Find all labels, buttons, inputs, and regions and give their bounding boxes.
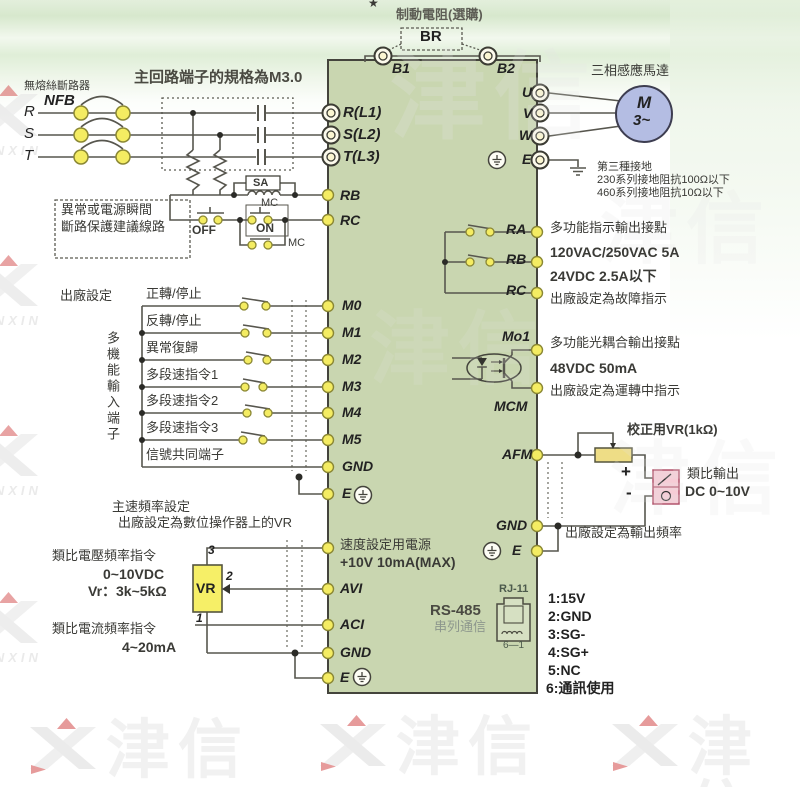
terminal-e-out-label: E [522, 151, 531, 167]
terminal-mo1-label: Mo1 [502, 328, 530, 344]
analog-current-range: 4~20mA [122, 639, 176, 655]
motor-phase-label: 3~ [633, 112, 650, 129]
terminal-m0-label: M0 [342, 297, 361, 313]
on-button-label[interactable]: ON [256, 222, 274, 236]
rj11-pin-range: 6—1 [503, 640, 524, 652]
terminal-aci-label: ACI [340, 616, 364, 632]
vr-pin1-label: 1 [196, 612, 203, 626]
terminal-ra-label: RA [506, 221, 526, 237]
terminal-b1 [375, 48, 392, 65]
terminal-rb2-label: RB [506, 251, 526, 267]
earth-icon [484, 543, 501, 560]
vr-spec: Vr：3k~5kΩ [88, 583, 167, 599]
input-row-desc: 正轉/停止 [146, 287, 202, 302]
vr-pin3-label: 3 [208, 544, 215, 558]
photo-note3: 出廠設定為運轉中指示 [550, 384, 680, 399]
terminal-avi-label: AVI [340, 580, 362, 596]
wiring-diagram-page: JINXIN JINXIN JINXIN JINXIN 津信 津信 津信 津信 … [0, 0, 800, 787]
terminal-rb [323, 190, 334, 201]
sa-label: SA [253, 177, 268, 190]
breaker-caption: 無熔絲斷路器 [24, 80, 90, 93]
terminal-e-out [532, 546, 543, 557]
analog-current-caption: 類比電流頻率指令 [52, 622, 156, 637]
terminal-mo1 [532, 345, 543, 356]
terminal-m2-label: M2 [342, 351, 361, 367]
terminal-u-label: U [522, 84, 532, 100]
terminal-rc-label: RC [340, 212, 360, 228]
terminal-w [532, 128, 549, 145]
photo-note2: 48VDC 50mA [550, 360, 637, 376]
terminal-e2-label: E [340, 669, 349, 685]
output-freq-note: 出廠設定為輸出頻率 [565, 526, 682, 541]
terminal-m4-label: M4 [342, 404, 361, 420]
pin-label: 3:SG- [548, 626, 585, 642]
terminal-b2 [480, 48, 497, 65]
analog-voltage-range: 0~10VDC [103, 566, 164, 582]
brake-resistor-label: 制動電阻(選購) [396, 8, 483, 23]
relay-note4: 出廠設定為故障指示 [550, 292, 667, 307]
pin-label: 5:NC [548, 662, 581, 678]
phase-t-label: T [24, 147, 33, 164]
pin-label: 2:GND [548, 608, 592, 624]
input-row-desc: 反轉/停止 [146, 314, 202, 329]
terminal-v-label: V [523, 105, 532, 121]
motor-m-label: M [637, 93, 651, 113]
terminal-rc-relay [532, 288, 543, 299]
terminal-b2-label: B2 [497, 60, 515, 76]
terminal-aci [323, 620, 334, 631]
input-row-desc: 多段速指令3 [146, 421, 218, 436]
photo-note1: 多功能光耦合輸出接點 [550, 336, 680, 351]
analog-voltage-caption: 類比電壓頻率指令 [52, 549, 156, 564]
grounding-line1: 第三種接地 [597, 161, 652, 174]
off-button-label[interactable]: OFF [192, 224, 216, 238]
input-group-label: 多機能輸入端子 [104, 331, 119, 443]
terminal-afm [532, 450, 543, 461]
terminal-b1-label: B1 [392, 60, 410, 76]
mc-contact-label: MC [288, 237, 305, 250]
analog-output-label2: DC 0~10V [685, 483, 750, 499]
phase-s-label: S [24, 125, 34, 142]
earth-icon [355, 487, 372, 504]
terminal-gnd-digital [323, 462, 334, 473]
surge-note-line1: 異常或電源瞬間 [61, 203, 152, 218]
terminal-w-label: W [519, 127, 532, 143]
input-row-desc: 異常復歸 [146, 341, 198, 356]
terminal-s-l2-label: S(L2) [343, 126, 381, 143]
serial-comm-label: 串列通信 [434, 620, 486, 635]
terminal-e-label: E [342, 485, 351, 501]
terminal-r-l1 [323, 105, 340, 122]
terminal-gnd-analog [323, 648, 334, 659]
rj11-jack[interactable] [497, 598, 530, 641]
pin-label: 4:SG+ [548, 644, 589, 660]
vr-pin2-label: 2 [226, 570, 233, 584]
terminal-afm-label: AFM [502, 446, 532, 462]
br-label: BR [420, 28, 442, 45]
analog-output-label1: 類比輸出 [687, 467, 739, 482]
star-marker: ★ [368, 0, 379, 11]
rs485-label: RS-485 [430, 602, 481, 619]
calibration-vr-label: 校正用VR(1kΩ) [627, 423, 718, 438]
terminal-e-output [532, 152, 549, 169]
terminal-rc2-label: RC [506, 282, 526, 298]
motor-caption: 三相感應馬達 [591, 64, 669, 79]
vr-label: VR [196, 580, 215, 596]
terminal-t-l3 [323, 149, 340, 166]
relay-note2: 120VAC/250VAC 5A [550, 244, 679, 260]
terminal-m1-label: M1 [342, 324, 361, 340]
terminal-m5 [323, 435, 334, 446]
terminal-gnd-label: GND [342, 458, 373, 474]
surge-note-line2: 斷路保護建議線路 [61, 220, 165, 235]
main-circuit-title: 主回路端子的規格為M3.0 [134, 69, 302, 86]
minus-sign: - [626, 483, 632, 503]
nfb-label: NFB [44, 92, 75, 109]
factory-setting-label: 出廠設定 [60, 289, 112, 304]
terminal-s-l2 [323, 127, 340, 144]
analog-meter [653, 470, 679, 504]
terminal-e3-label: E [512, 542, 521, 558]
terminal-m2 [323, 355, 334, 366]
terminal-ra [532, 227, 543, 238]
terminal-10v [323, 543, 334, 554]
terminal-v [532, 105, 549, 122]
power-note-line1: 速度設定用電源 [340, 538, 431, 553]
freq-setting-line2: 出廠設定為數位操作器上的VR [118, 516, 292, 531]
freq-setting-line1: 主速頻率設定 [112, 500, 190, 515]
mc-coil-label: MC [261, 197, 278, 210]
earth-icon [489, 152, 506, 169]
terminal-mcm-label: MCM [494, 398, 527, 414]
earth-icon [354, 669, 371, 686]
terminal-e-digital [323, 489, 334, 500]
terminal-r-l1-label: R(L1) [343, 104, 381, 121]
calibration-vr-resistor[interactable] [595, 448, 632, 462]
terminal-m4 [323, 408, 334, 419]
terminal-m3 [323, 382, 334, 393]
wiper-arrow-icon [222, 584, 230, 594]
terminal-mcm [532, 383, 543, 394]
terminal-m0 [323, 301, 334, 312]
grounding-line2: 230系列接地阻抗100Ω以下 [597, 174, 730, 187]
terminal-m5-label: M5 [342, 431, 361, 447]
input-row-desc: 信號共同端子 [146, 448, 224, 463]
relay-note1: 多功能指示輸出接點 [550, 221, 667, 236]
phase-r-label: R [24, 103, 35, 120]
relay-note3: 24VDC 2.5A以下 [550, 268, 657, 284]
input-row-desc: 多段速指令1 [146, 368, 218, 383]
terminal-rb-label: RB [340, 187, 360, 203]
terminal-gnd3-label: GND [496, 517, 527, 533]
terminal-rc [323, 215, 334, 226]
pin-label: 1:15V [548, 590, 585, 606]
plus-sign: + [621, 462, 631, 482]
rj11-label: RJ-11 [499, 583, 528, 596]
pin-label: 6:通訊使用 [546, 680, 614, 696]
terminal-avi [323, 584, 334, 595]
terminal-m3-label: M3 [342, 378, 361, 394]
terminal-m1 [323, 328, 334, 339]
terminal-gnd2-label: GND [340, 644, 371, 660]
power-note-line2: +10V 10mA(MAX) [340, 554, 456, 570]
terminal-gnd-out [532, 521, 543, 532]
grounding-line3: 460系列接地阻抗10Ω以下 [597, 187, 724, 200]
input-row-desc: 多段速指令2 [146, 394, 218, 409]
terminal-t-l3-label: T(L3) [343, 148, 380, 165]
terminal-e-analog [323, 673, 334, 684]
terminal-rb-relay [532, 257, 543, 268]
terminal-u [532, 85, 549, 102]
